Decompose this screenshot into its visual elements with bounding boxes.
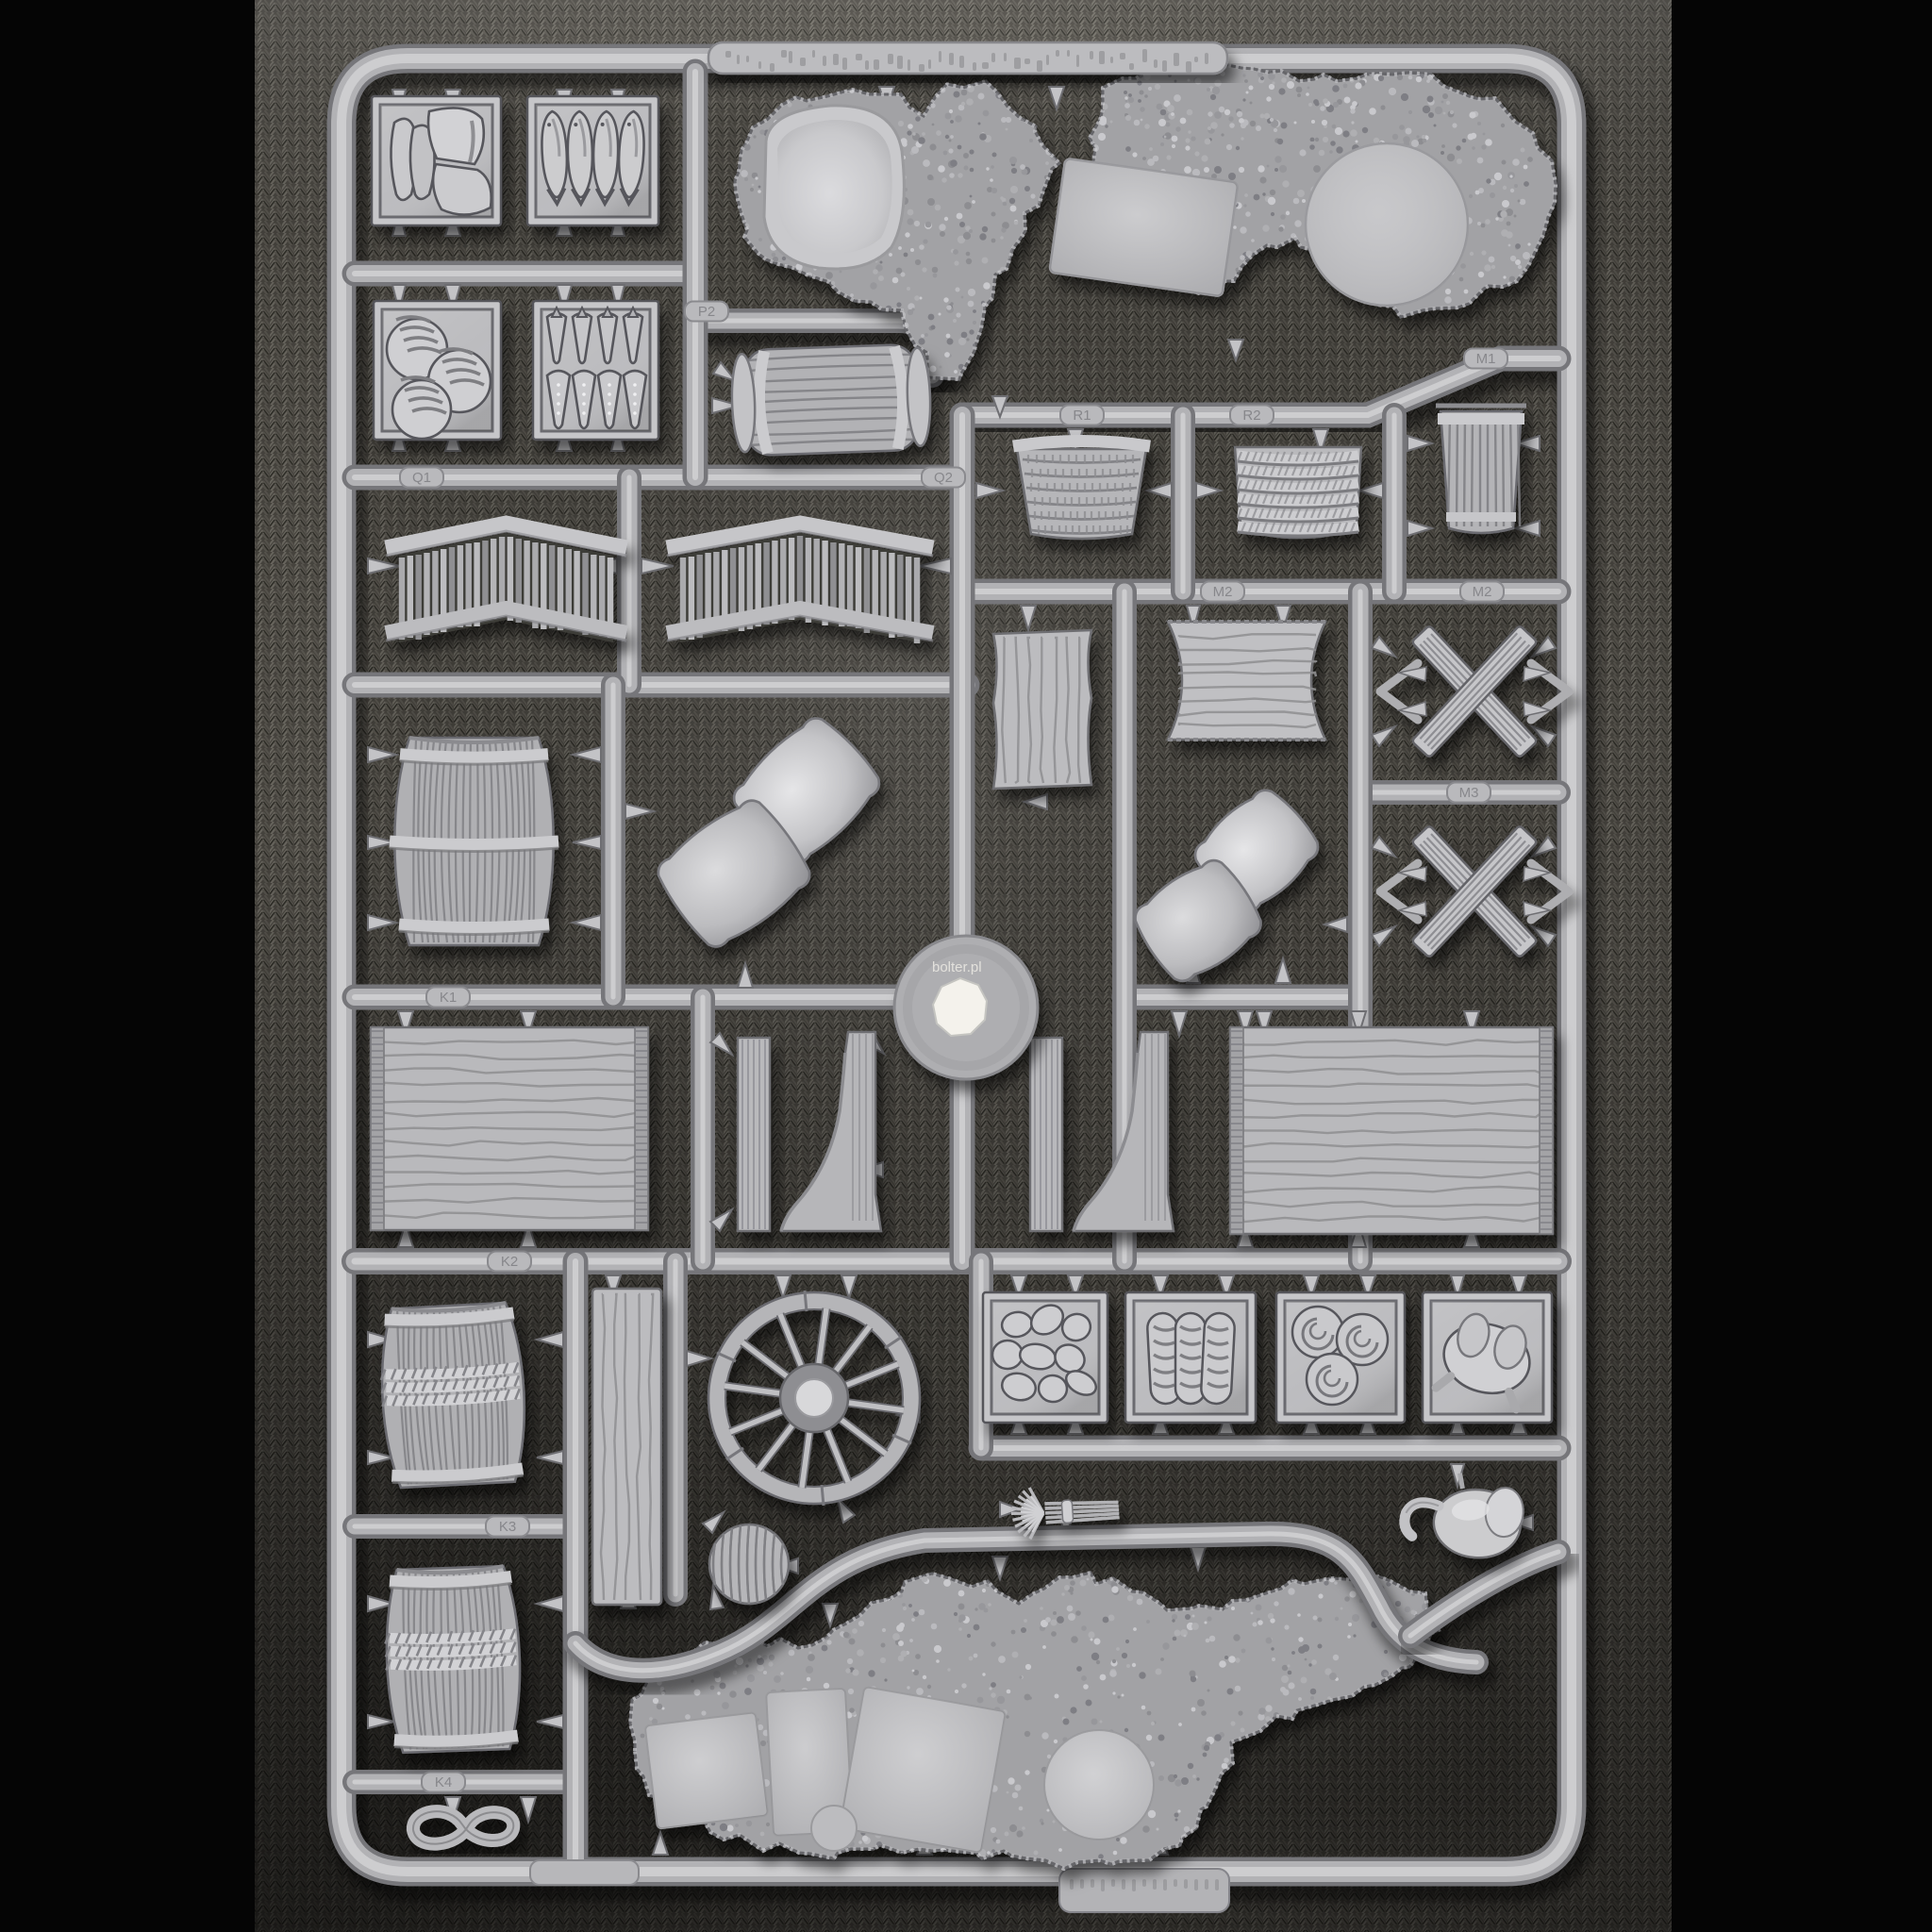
svg-text:bolter.pl: bolter.pl [932, 959, 982, 975]
svg-text:R1: R1 [1073, 408, 1091, 424]
svg-text:M2: M2 [1473, 584, 1492, 600]
svg-text:Q2: Q2 [934, 470, 953, 486]
svg-text:M3: M3 [1459, 785, 1479, 801]
svg-text:K4: K4 [435, 1774, 452, 1790]
svg-text:P2: P2 [698, 304, 715, 320]
svg-text:R2: R2 [1242, 408, 1260, 424]
svg-text:Q1: Q1 [412, 470, 431, 486]
svg-text:K3: K3 [499, 1519, 516, 1535]
svg-text:K2: K2 [501, 1254, 518, 1270]
svg-text:M2: M2 [1213, 584, 1233, 600]
svg-text:M1: M1 [1476, 351, 1496, 367]
svg-text:K1: K1 [440, 990, 457, 1006]
